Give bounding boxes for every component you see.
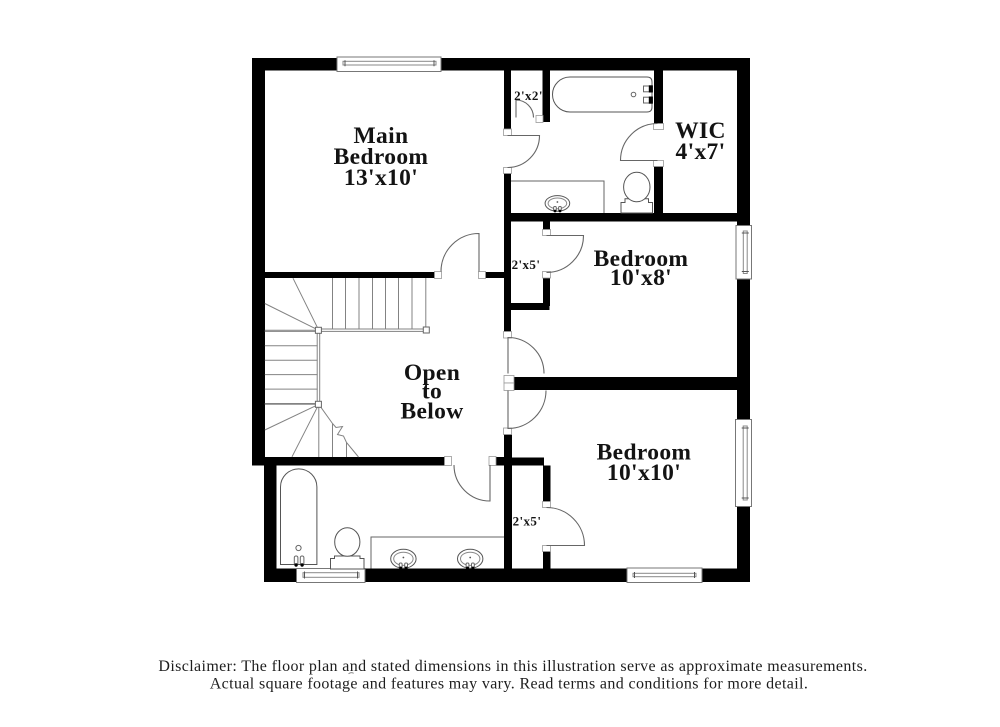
svg-text:Disclaimer: The floor plan and: Disclaimer: The floor plan and stated di… [158, 658, 867, 675]
svg-text:2'x2': 2'x2' [514, 88, 543, 103]
svg-text:Below: Below [400, 399, 463, 425]
svg-text:Actual square footage and feat: Actual square footage and features may v… [210, 676, 809, 693]
svg-text:4'x7': 4'x7' [675, 139, 725, 165]
svg-text:13'x10': 13'x10' [344, 165, 418, 191]
svg-text:10'x10': 10'x10' [607, 460, 681, 486]
svg-text:2'x5': 2'x5' [512, 257, 541, 272]
svg-text:10'x8': 10'x8' [610, 265, 672, 291]
svg-text:2'x5': 2'x5' [513, 514, 542, 529]
